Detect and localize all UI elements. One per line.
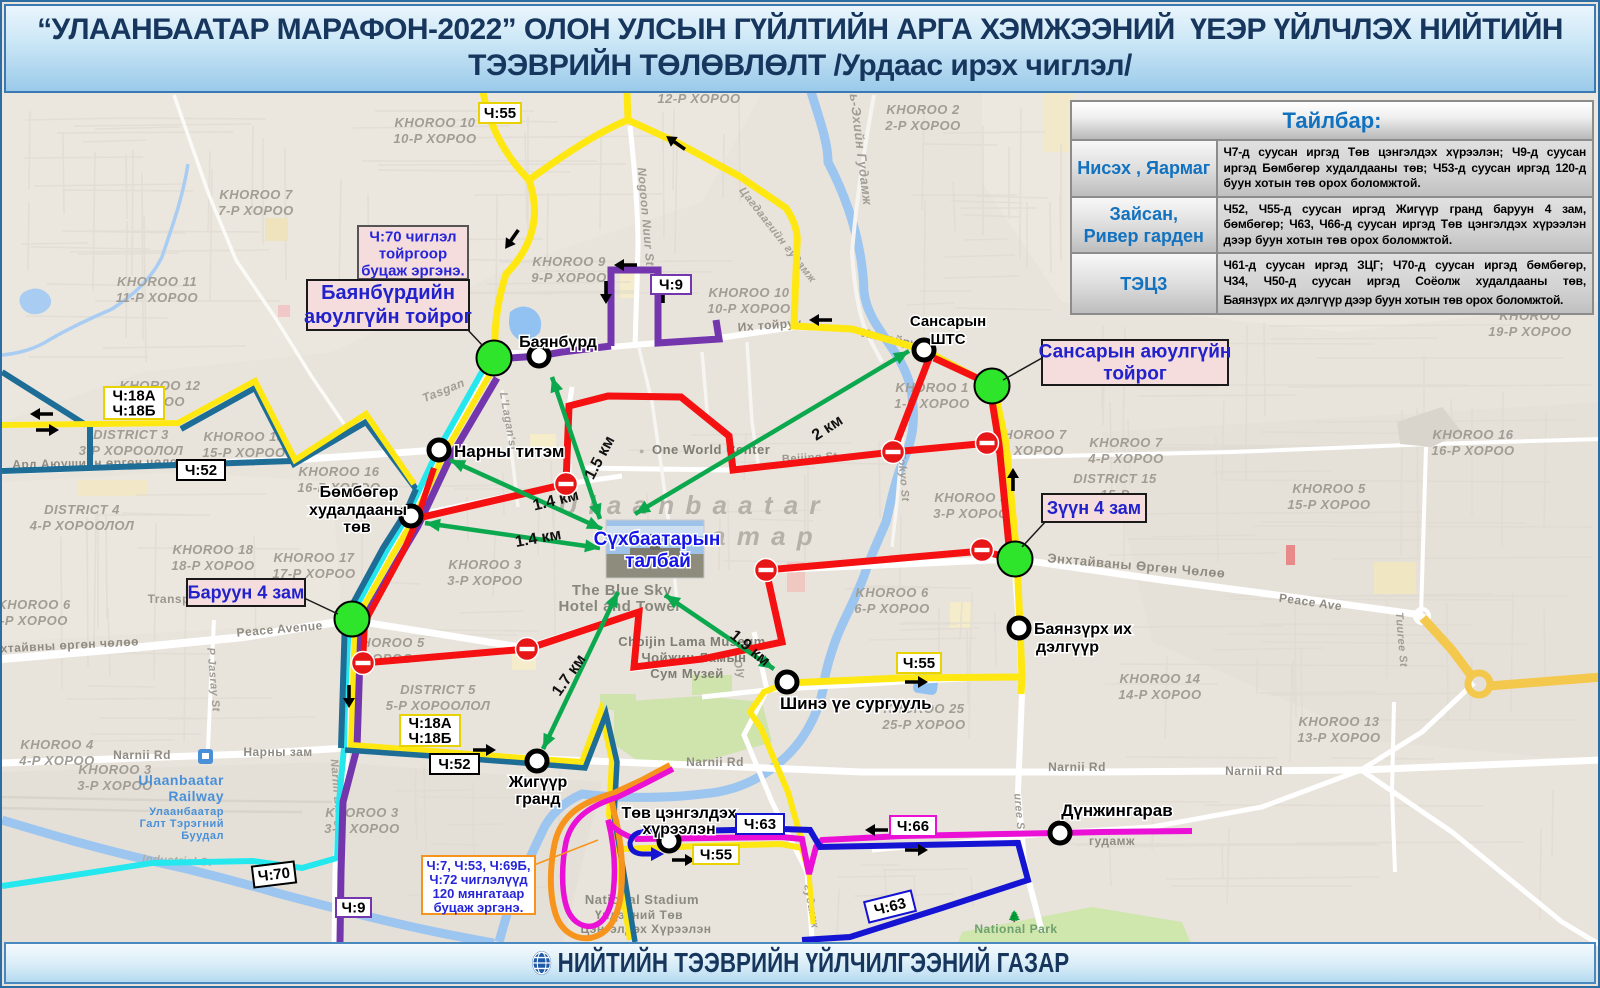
svg-text:KHOROO 18: KHOROO 18 bbox=[172, 542, 253, 557]
svg-text:1-P XOPOO: 1-P XOPOO bbox=[894, 396, 970, 411]
svg-text:Сум Музей: Сум Музей bbox=[650, 666, 724, 681]
svg-text:The Blue Sky: The Blue Sky bbox=[572, 582, 672, 599]
svg-text:Narnii Rd: Narnii Rd bbox=[113, 748, 171, 762]
svg-text:4-P ХОРООЛОЛ: 4-P ХОРООЛОЛ bbox=[29, 518, 135, 533]
svg-text:талбай: талбай bbox=[625, 551, 691, 572]
svg-text:Ч:9: Ч:9 bbox=[659, 277, 683, 294]
svg-text:Ч:18Б: Ч:18Б bbox=[112, 403, 155, 420]
svg-text:KHOROO 7: KHOROO 7 bbox=[1089, 435, 1163, 450]
svg-text:18-P XOPOO: 18-P XOPOO bbox=[171, 558, 254, 573]
svg-text:Бөмбөгөр: Бөмбөгөр bbox=[320, 484, 399, 501]
svg-text:Narnii Rd: Narnii Rd bbox=[686, 755, 744, 769]
svg-text:Төв цэнгэлдэх: Төв цэнгэлдэх bbox=[621, 805, 736, 822]
svg-text:худалдааны: худалдааны bbox=[309, 502, 407, 519]
svg-text:KHOROO 7: KHOROO 7 bbox=[219, 187, 293, 202]
svg-text:2-P XOPOO: 2-P XOPOO bbox=[884, 118, 961, 133]
svg-text:13-P XOPOO: 13-P XOPOO bbox=[1297, 730, 1380, 745]
svg-text:16-P XOPOO: 16-P XOPOO bbox=[1431, 443, 1514, 458]
svg-text:5-P ХОРООЛОЛ: 5-P ХОРООЛОЛ bbox=[386, 698, 491, 713]
svg-text:KHOROO 4: KHOROO 4 bbox=[20, 737, 94, 752]
svg-text:Дүнжингарав: Дүнжингарав bbox=[1061, 801, 1172, 820]
svg-text:ШТС: ШТС bbox=[930, 331, 965, 348]
svg-text:Жигүүр: Жигүүр bbox=[508, 774, 568, 791]
svg-text:DISTRICT 4: DISTRICT 4 bbox=[44, 502, 120, 517]
svg-text:Ч:55: Ч:55 bbox=[903, 655, 935, 672]
svg-text:19-P XOPOO: 19-P XOPOO bbox=[1488, 324, 1571, 339]
svg-text:буцаж эргэнэ.: буцаж эргэнэ. bbox=[434, 900, 524, 915]
svg-text:Ulaanbaatar: Ulaanbaatar bbox=[138, 772, 224, 788]
svg-text:хүрээлэн: хүрээлэн bbox=[642, 821, 715, 838]
svg-text:14-P XOPOO: 14-P XOPOO bbox=[1118, 687, 1201, 702]
svg-text:KHOROO 16: KHOROO 16 bbox=[1432, 427, 1513, 442]
svg-text:Ч:66: Ч:66 bbox=[897, 818, 929, 835]
svg-text:Narnii Rd: Narnii Rd bbox=[1048, 760, 1106, 774]
svg-text:Сансарын аюулгүйн: Сансарын аюулгүйн bbox=[1039, 342, 1232, 363]
svg-text:KHOROO 2: KHOROO 2 bbox=[886, 102, 960, 117]
svg-text:Сүхбаатарын: Сүхбаатарын bbox=[594, 529, 721, 550]
svg-text:KHOROO 16: KHOROO 16 bbox=[298, 464, 379, 479]
svg-text:3-P XOPOO: 3-P XOPOO bbox=[447, 573, 523, 588]
svg-text:Баянзүрх их: Баянзүрх их bbox=[1034, 621, 1132, 638]
svg-text:4-P XOPOO: 4-P XOPOO bbox=[1087, 451, 1164, 466]
svg-text:төв: төв bbox=[343, 519, 371, 536]
svg-text:Ч:52: Ч:52 bbox=[438, 756, 470, 773]
svg-text:Ч:63: Ч:63 bbox=[744, 816, 776, 833]
svg-text:10-P XOPOO: 10-P XOPOO bbox=[707, 301, 790, 316]
svg-text:буцаж эргэнэ.: буцаж эргэнэ. bbox=[361, 263, 464, 280]
svg-text:Ч:18Б: Ч:18Б bbox=[408, 730, 451, 747]
svg-text:DISTRICT 5: DISTRICT 5 bbox=[400, 682, 476, 697]
svg-text:9-P XOPOO: 9-P XOPOO bbox=[531, 270, 607, 285]
svg-text:3-P XOPOO: 3-P XOPOO bbox=[933, 506, 1009, 521]
svg-text:Сансарын: Сансарын bbox=[910, 313, 986, 330]
svg-text:KHOROO 5: KHOROO 5 bbox=[1292, 481, 1366, 496]
svg-text:Ч:70 чиглэл: Ч:70 чиглэл bbox=[369, 229, 456, 246]
svg-text:Шинэ үе сургууль: Шинэ үе сургууль bbox=[780, 694, 932, 713]
svg-text:25-P XOPOO: 25-P XOPOO bbox=[881, 717, 965, 732]
svg-text:Narnii Rd: Narnii Rd bbox=[1225, 764, 1283, 778]
svg-text:Ч:72 чиглэлүүд: Ч:72 чиглэлүүд bbox=[429, 872, 528, 887]
svg-text:аюулгүйн тойрог: аюулгүйн тойрог bbox=[304, 306, 472, 328]
svg-text:10-P XOPOO: 10-P XOPOO bbox=[393, 131, 476, 146]
svg-text:KHOROO 1: KHOROO 1 bbox=[895, 380, 968, 395]
svg-text:Зүүн 4 зам: Зүүн 4 зам bbox=[1047, 498, 1141, 518]
svg-text:KHOROO 6: KHOROO 6 bbox=[855, 585, 929, 600]
svg-text:Буудал: Буудал bbox=[181, 830, 224, 842]
svg-text:Ч:55: Ч:55 bbox=[700, 847, 732, 864]
svg-text:15-P XOPOO: 15-P XOPOO bbox=[1287, 497, 1370, 512]
svg-text:DISTRICT 15: DISTRICT 15 bbox=[1073, 471, 1157, 486]
svg-text:Улаанбаатар: Улаанбаатар bbox=[149, 806, 224, 818]
svg-text:KHOROO 17: KHOROO 17 bbox=[273, 550, 354, 565]
svg-text:Ч:52: Ч:52 bbox=[185, 462, 217, 479]
svg-text:●: ● bbox=[639, 446, 645, 456]
svg-text:KHOROO 3: KHOROO 3 bbox=[934, 490, 1008, 505]
svg-text:-P XOPOO: -P XOPOO bbox=[2, 613, 68, 628]
svg-text:12-P XOPOO: 12-P XOPOO bbox=[657, 91, 740, 106]
svg-text:Ч:9: Ч:9 bbox=[342, 900, 366, 917]
svg-text:National Stadium: National Stadium bbox=[585, 892, 699, 907]
svg-text:тойрог: тойрог bbox=[1103, 364, 1167, 385]
svg-text:гранд: гранд bbox=[515, 791, 560, 808]
svg-text:KHOROO 9: KHOROO 9 bbox=[532, 254, 606, 269]
svg-text:гудамж: гудамж bbox=[1089, 834, 1135, 848]
svg-text:KHOROO 11: KHOROO 11 bbox=[117, 274, 197, 289]
svg-text:Баянбүрд: Баянбүрд bbox=[519, 334, 597, 351]
svg-text:дэлгүүр: дэлгүүр bbox=[1036, 639, 1099, 656]
svg-text:Баянбүрдийн: Баянбүрдийн bbox=[321, 282, 455, 304]
svg-text:Нарны титэм: Нарны титэм bbox=[454, 442, 564, 461]
svg-text:KHOROO 3: KHOROO 3 bbox=[448, 557, 522, 572]
svg-text:тойргоор: тойргоор bbox=[379, 246, 447, 263]
svg-text:KHOROO 10: KHOROO 10 bbox=[394, 115, 475, 130]
svg-text:Баруун 4 зам: Баруун 4 зам bbox=[188, 583, 305, 603]
svg-text:Ч:55: Ч:55 bbox=[484, 105, 516, 122]
svg-text:🌲: 🌲 bbox=[1008, 910, 1022, 923]
svg-text:KHOROO 10: KHOROO 10 bbox=[708, 285, 789, 300]
svg-text:Нарны зам: Нарны зам bbox=[243, 745, 312, 759]
svg-text:Hotel and Tower: Hotel and Tower bbox=[558, 598, 681, 615]
svg-text:KHOROO 15: KHOROO 15 bbox=[203, 429, 284, 444]
svg-text:National Park: National Park bbox=[974, 922, 1057, 936]
svg-text:DISTRICT 3: DISTRICT 3 bbox=[93, 427, 169, 442]
svg-text:KHOROO 13: KHOROO 13 bbox=[1298, 714, 1379, 729]
svg-text:Ч:7, Ч:53, Ч:69Б,: Ч:7, Ч:53, Ч:69Б, bbox=[427, 858, 531, 873]
svg-text:7-P XOPOO: 7-P XOPOO bbox=[218, 203, 294, 218]
svg-text:KHOROO 14: KHOROO 14 bbox=[1119, 671, 1200, 686]
svg-text:15-P XOPOO: 15-P XOPOO bbox=[202, 445, 285, 460]
svg-text:11-P XOPOO: 11-P XOPOO bbox=[116, 290, 198, 305]
svg-text:Railway: Railway bbox=[168, 788, 224, 804]
svg-text:KHOROO 6: KHOROO 6 bbox=[2, 597, 71, 612]
svg-text:Галт Тэрэгний: Галт Тэрэгний bbox=[140, 818, 224, 830]
svg-text:6-P XOPOO: 6-P XOPOO bbox=[854, 601, 930, 616]
svg-text:120 мянгатаар: 120 мянгатаар bbox=[433, 886, 525, 901]
